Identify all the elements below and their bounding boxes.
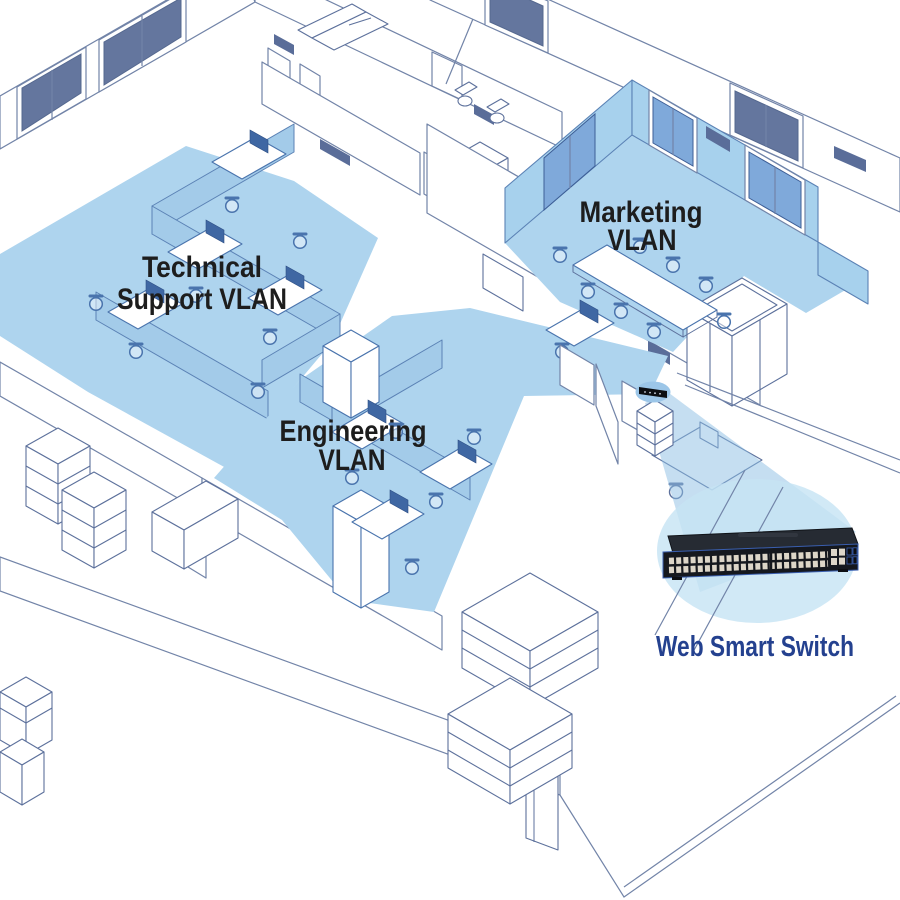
wall-vent [274, 34, 294, 55]
switch-foot [838, 569, 848, 572]
technical-support-vlan-label-line2: Support VLAN [117, 283, 287, 316]
shelf-unit [62, 472, 126, 568]
office-vlan-diagram: Technical Support VLAN Engineering VLAN … [0, 0, 900, 900]
floor-slab-edge [560, 696, 900, 897]
switch-foot [672, 577, 682, 580]
counter [152, 481, 238, 569]
technical-support-vlan-label-line1: Technical [142, 251, 262, 284]
bathroom-divider [432, 52, 462, 100]
shelf-unit [0, 739, 44, 805]
switch-brand-area [738, 533, 798, 537]
marketing-vlan-label-line2: VLAN [608, 224, 677, 257]
window [17, 47, 86, 139]
floor-plan-svg: Technical Support VLAN Engineering VLAN … [0, 0, 900, 900]
engineering-vlan-label-line2: VLAN [319, 444, 386, 477]
window [485, 0, 548, 53]
shelf-unit [462, 573, 598, 707]
switch-callout [636, 382, 859, 653]
equipment-rack [637, 400, 673, 456]
web-smart-switch-label: Web Smart Switch [656, 631, 854, 663]
